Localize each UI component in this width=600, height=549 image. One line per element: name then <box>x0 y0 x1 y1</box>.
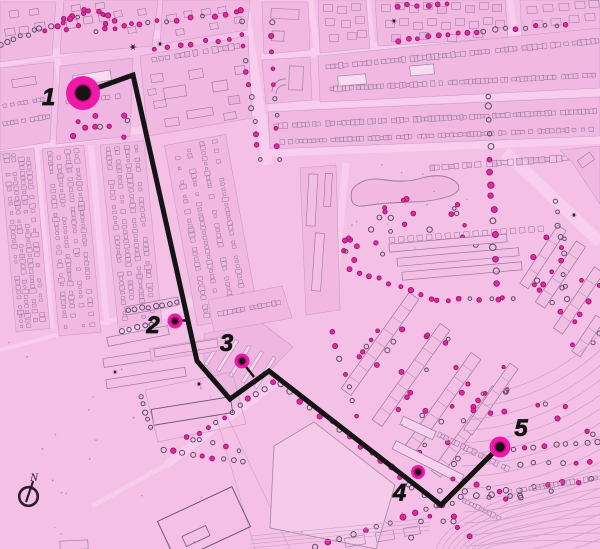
svg-text:4: 4 <box>392 480 406 507</box>
svg-text:3: 3 <box>220 330 234 357</box>
svg-text:N: N <box>29 470 39 484</box>
svg-text:2: 2 <box>145 312 160 339</box>
svg-text:1: 1 <box>42 84 55 111</box>
svg-text:5: 5 <box>514 415 528 442</box>
